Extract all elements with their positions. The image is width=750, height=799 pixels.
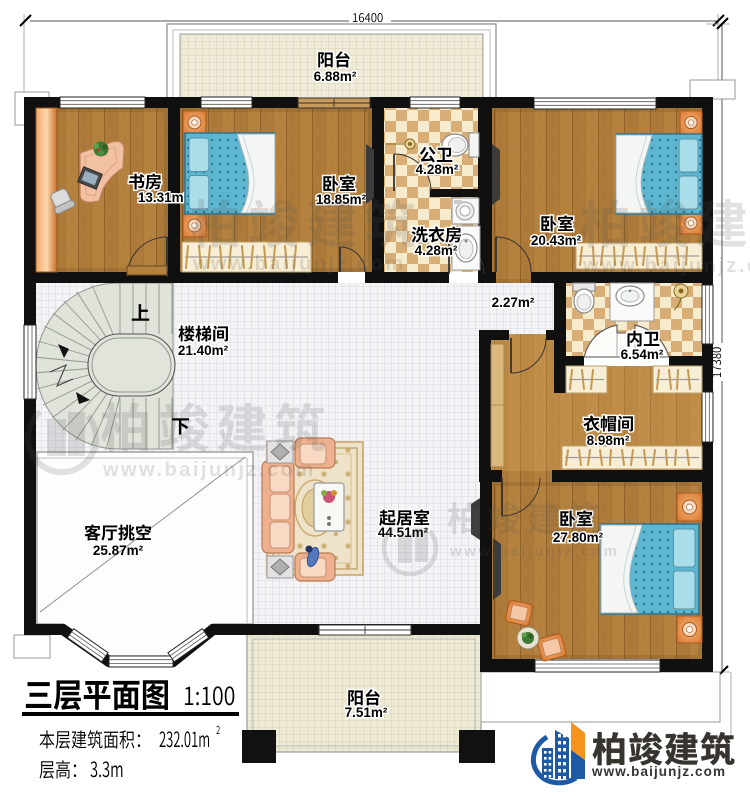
svg-text:2.27m²: 2.27m² [492,295,535,310]
svg-text:www.baijunjz.com: www.baijunjz.com [102,459,316,481]
svg-text:6.88m²: 6.88m² [314,69,357,84]
svg-text:www.baijunjz.com: www.baijunjz.com [192,253,406,275]
svg-text:6.54m²: 6.54m² [621,347,664,362]
svg-text:www.baijunjz.com: www.baijunjz.com [582,255,750,277]
svg-text:www.baijunjz.com: www.baijunjz.com [591,764,726,779]
svg-text:4.28m²: 4.28m² [416,162,459,177]
svg-text:21.40m²: 21.40m² [178,343,229,358]
svg-text:7.51m²: 7.51m² [345,705,388,720]
svg-text:www.baijunjz.com: www.baijunjz.com [449,543,619,560]
svg-text:20.43m²: 20.43m² [531,233,582,248]
svg-text:25.87m²: 25.87m² [93,543,144,558]
svg-text:8.98m²: 8.98m² [587,433,630,448]
svg-text:4.28m²: 4.28m² [415,243,458,258]
svg-text:13.31m²: 13.31m² [138,190,189,205]
